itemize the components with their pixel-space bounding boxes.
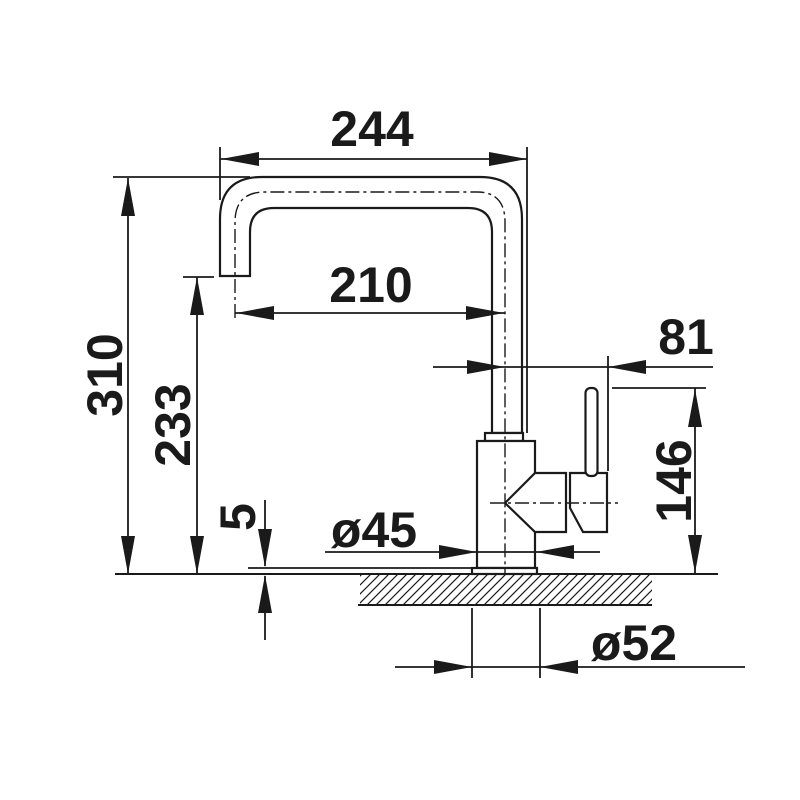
dim-dia45-arrow-right bbox=[536, 545, 574, 559]
dim-dia52: ø52 bbox=[395, 608, 745, 678]
dim-label-244: 244 bbox=[330, 101, 414, 157]
dim-dia52-arrow-right bbox=[540, 660, 578, 674]
dim-310-arrow-top bbox=[121, 178, 135, 216]
dim-dia45-arrow-left bbox=[439, 545, 477, 559]
dim-label-dia52: ø52 bbox=[591, 615, 677, 671]
dim-label-5: 5 bbox=[210, 503, 266, 531]
dim-233-arrow-top bbox=[190, 277, 204, 315]
dim-310-arrow-bottom bbox=[121, 536, 135, 574]
mounting-collar bbox=[485, 433, 523, 441]
dim-233-arrow-bottom bbox=[190, 536, 204, 574]
dim-146-arrow-bottom bbox=[688, 535, 702, 573]
dim-label-dia45: ø45 bbox=[331, 502, 417, 558]
technical-drawing-canvas: 244 210 81 310 233 146 bbox=[0, 0, 800, 800]
countertop-section bbox=[115, 574, 718, 605]
dim-244-arrow-right bbox=[489, 152, 527, 166]
dim-244-arrow-left bbox=[221, 152, 259, 166]
dim-dia52-arrow-left bbox=[434, 660, 472, 674]
dim-233: 233 bbox=[145, 277, 214, 574]
dim-81-arrow-right bbox=[608, 360, 646, 374]
dim-label-233: 233 bbox=[145, 383, 201, 466]
dim-label-146: 146 bbox=[646, 439, 702, 522]
dim-5-arrow-down bbox=[258, 529, 272, 567]
dim-146: 146 bbox=[612, 388, 706, 574]
dim-label-310: 310 bbox=[77, 333, 133, 416]
countertop-hatch bbox=[360, 574, 652, 605]
dim-146-arrow-top bbox=[688, 389, 702, 427]
dim-210-arrow-left bbox=[236, 306, 274, 320]
dim-label-81: 81 bbox=[658, 309, 714, 365]
dim-5-arrow-up bbox=[258, 575, 272, 613]
dim-210: 210 bbox=[235, 257, 505, 320]
faucet-dimension-diagram: 244 210 81 310 233 146 bbox=[0, 0, 800, 800]
handle-lever bbox=[586, 388, 598, 476]
dim-label-210: 210 bbox=[329, 257, 412, 313]
